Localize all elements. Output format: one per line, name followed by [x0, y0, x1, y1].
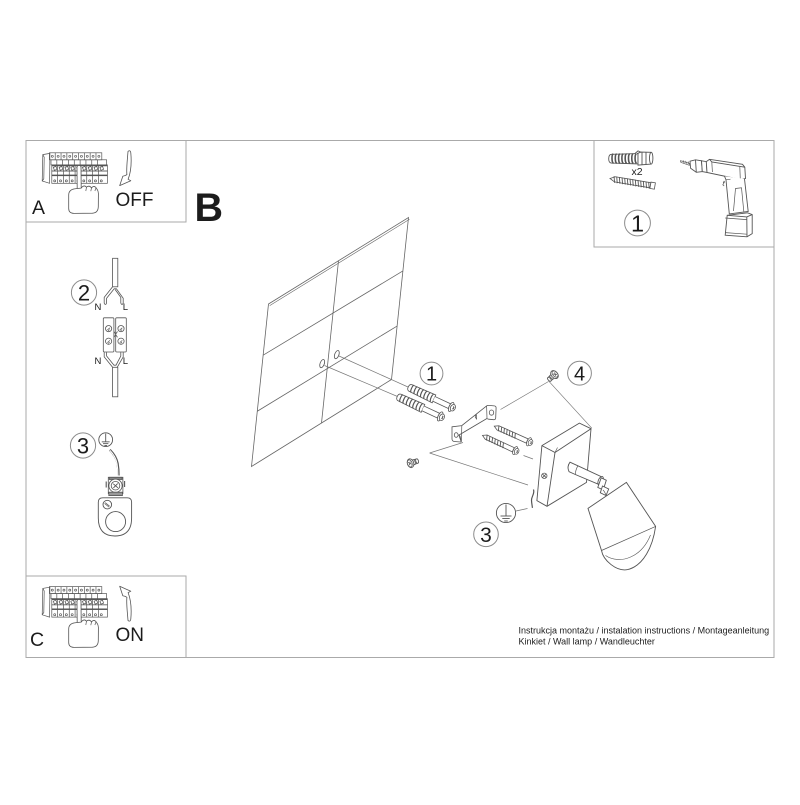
svg-text:L: L: [123, 302, 128, 313]
svg-text:4: 4: [574, 363, 585, 385]
svg-text:B: B: [195, 186, 224, 230]
svg-text:N: N: [95, 302, 102, 313]
svg-text:Kinkiet / Wall lamp / Wandleuc: Kinkiet / Wall lamp / Wandleuchter: [519, 637, 655, 647]
svg-text:ON: ON: [116, 625, 145, 646]
svg-text:2: 2: [78, 280, 90, 305]
svg-text:Instrukcja montażu / instalati: Instrukcja montażu / instalation instruc…: [519, 626, 770, 636]
svg-text:1: 1: [631, 210, 644, 236]
svg-text:3: 3: [480, 524, 492, 547]
svg-text:x2: x2: [632, 166, 643, 178]
svg-text:C: C: [30, 629, 44, 651]
svg-text:A: A: [32, 197, 45, 219]
svg-text:1: 1: [426, 364, 437, 386]
svg-text:N: N: [95, 356, 102, 367]
svg-text:3: 3: [77, 433, 89, 458]
svg-text:OFF: OFF: [116, 190, 154, 211]
svg-text:L: L: [123, 356, 128, 367]
